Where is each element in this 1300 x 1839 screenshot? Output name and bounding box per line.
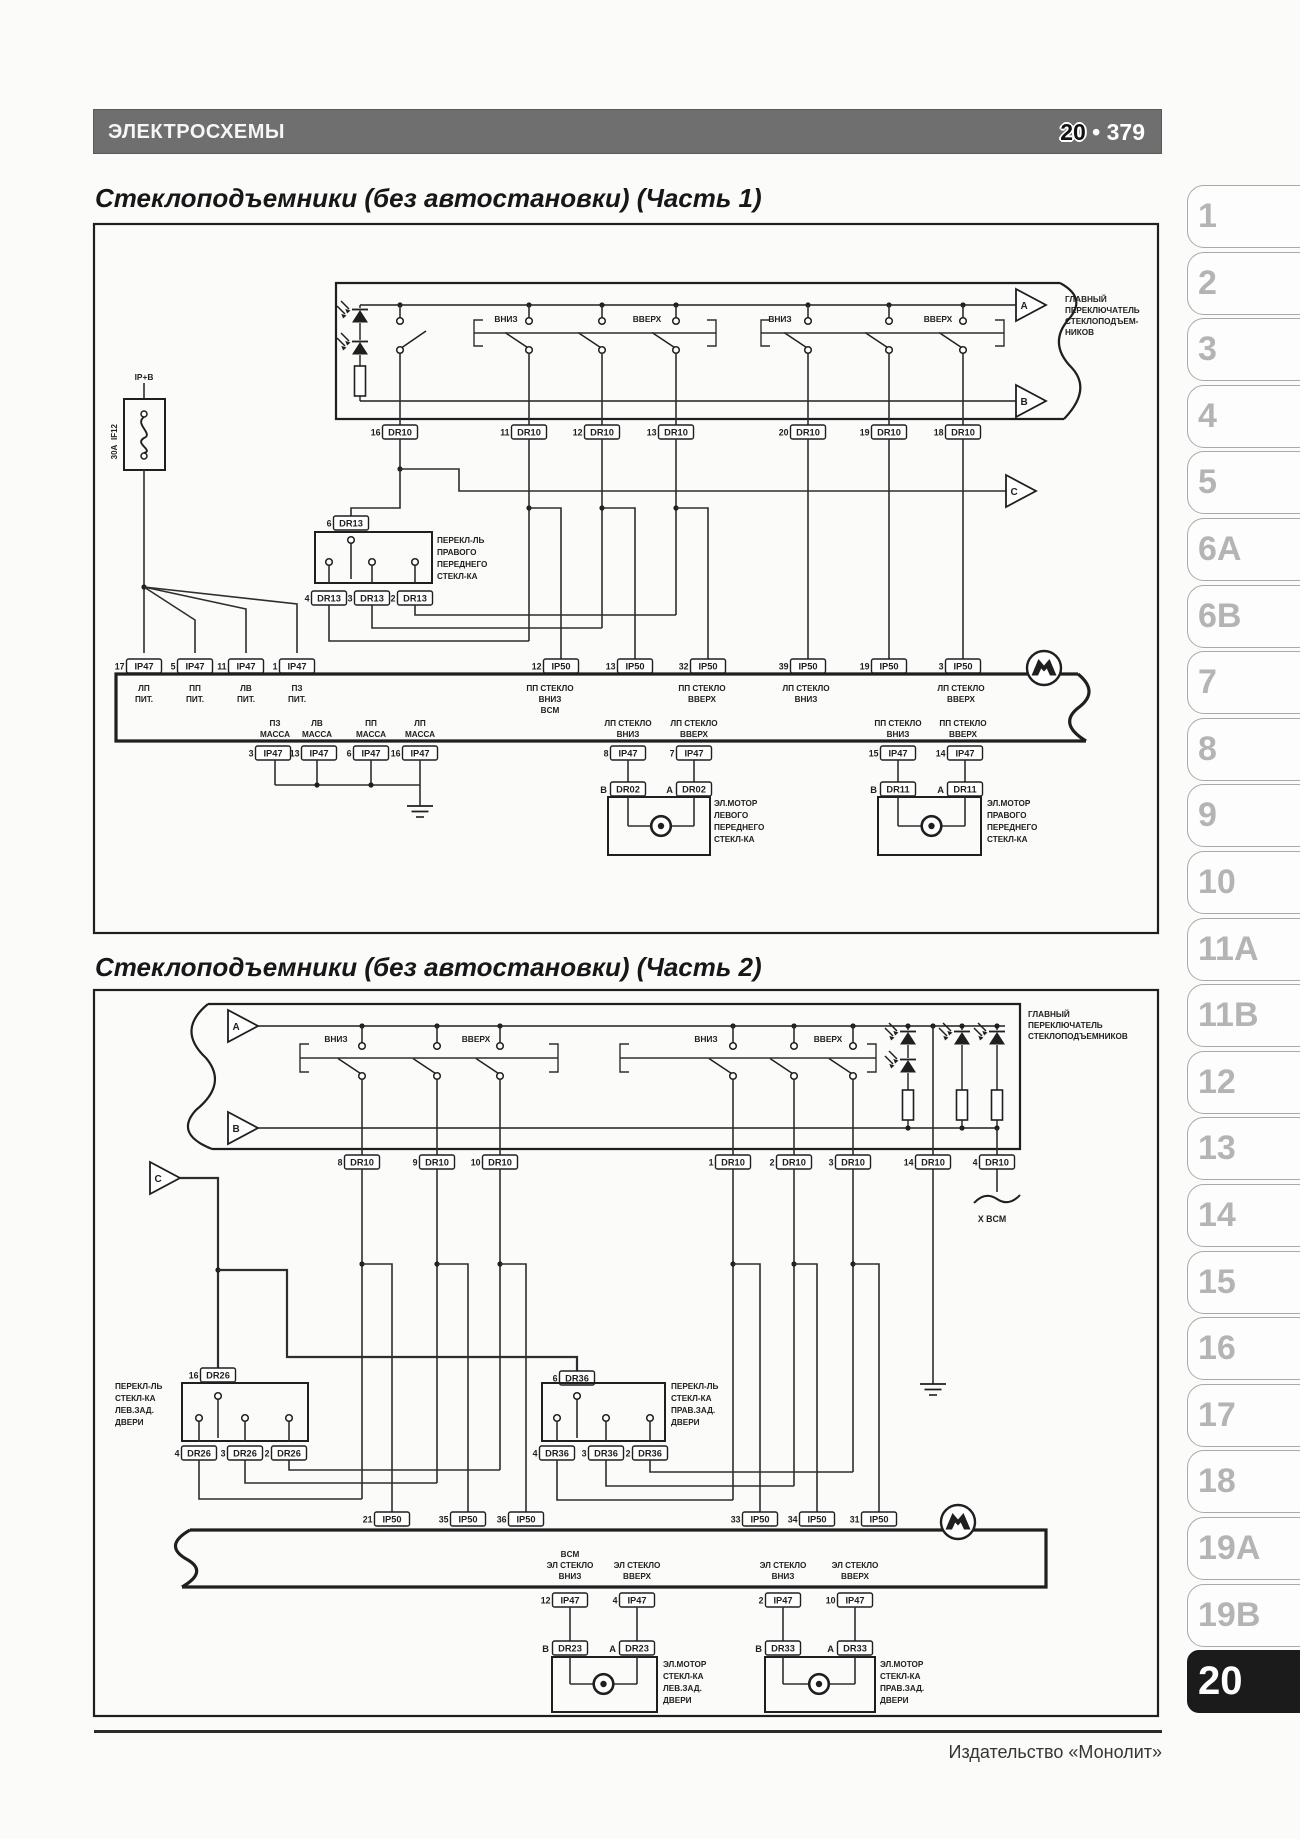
svg-text:DR10: DR10 [517,427,541,437]
svg-text:IP50: IP50 [516,1514,535,1524]
svg-text:ДВЕРИ: ДВЕРИ [663,1696,692,1705]
svg-text:B: B [755,1644,762,1654]
svg-text:DR13: DR13 [360,593,384,603]
svg-text:ВНИЗ: ВНИЗ [559,1572,582,1581]
svg-text:DR10: DR10 [796,427,820,437]
svg-text:1: 1 [709,1157,714,1167]
svg-text:ЭЛ СТЕКЛО: ЭЛ СТЕКЛО [832,1561,879,1570]
svg-text:2: 2 [626,1448,631,1458]
svg-text:DR10: DR10 [350,1157,374,1167]
svg-text:B: B [1021,397,1028,408]
svg-text:9: 9 [413,1157,418,1167]
svg-text:DR11: DR11 [886,784,909,794]
svg-text:C: C [155,1174,162,1185]
svg-text:ЭЛ СТЕКЛО: ЭЛ СТЕКЛО [547,1561,594,1570]
svg-text:IP50: IP50 [869,1514,888,1524]
svg-text:НИКОВ: НИКОВ [1065,328,1094,337]
svg-text:ПРАВ.ЗАД.: ПРАВ.ЗАД. [880,1684,924,1693]
svg-text:ПЕРЕДНЕГО: ПЕРЕДНЕГО [987,823,1038,832]
svg-text:СТЕКЛ-КА: СТЕКЛ-КА [880,1672,921,1681]
svg-text:ПП СТЕКЛО: ПП СТЕКЛО [678,684,726,693]
svg-text:ПЗ: ПЗ [291,684,302,693]
svg-text:ВВЕРХ: ВВЕРХ [462,1034,491,1044]
svg-text:ВНИЗ: ВНИЗ [694,1034,717,1044]
svg-text:DR26: DR26 [187,1448,211,1458]
svg-text:IP50: IP50 [551,661,570,671]
svg-text:2: 2 [759,1595,764,1605]
svg-text:DR11: DR11 [953,784,976,794]
svg-text:39: 39 [779,661,789,671]
svg-text:DR33: DR33 [843,1643,867,1653]
svg-text:IP47: IP47 [627,1595,646,1605]
svg-text:ГЛАВНЫЙ: ГЛАВНЫЙ [1028,1008,1070,1019]
svg-text:4: 4 [533,1448,538,1458]
svg-text:IP47: IP47 [845,1595,864,1605]
svg-text:DR10: DR10 [877,427,901,437]
svg-text:A: A [609,1644,616,1654]
svg-text:B: B [542,1644,549,1654]
svg-text:ПЕРЕДНЕГО: ПЕРЕДНЕГО [714,823,765,832]
svg-text:1: 1 [273,661,278,671]
svg-text:DR10: DR10 [921,1157,945,1167]
svg-text:34: 34 [788,1514,798,1524]
svg-text:СТЕКЛ-КА: СТЕКЛ-КА [714,835,755,844]
svg-text:19: 19 [860,661,870,671]
svg-text:13: 13 [290,748,300,758]
svg-text:ПЕРЕКЛ-ЛЬ: ПЕРЕКЛ-ЛЬ [437,536,484,545]
svg-text:DR10: DR10 [985,1157,1009,1167]
svg-text:ПЕРЕКЛЮЧАТЕЛЬ: ПЕРЕКЛЮЧАТЕЛЬ [1065,306,1140,315]
svg-text:ВВЕРХ: ВВЕРХ [623,1572,651,1581]
svg-text:IP47: IP47 [236,661,255,671]
svg-text:IP47: IP47 [309,748,328,758]
svg-text:3: 3 [249,748,254,758]
svg-text:33: 33 [731,1514,741,1524]
svg-text:МАССА: МАССА [302,730,332,739]
svg-text:IP50: IP50 [698,661,717,671]
svg-text:ПЕРЕДНЕГО: ПЕРЕДНЕГО [437,560,488,569]
svg-text:IP47: IP47 [560,1595,579,1605]
svg-text:ЛП: ЛП [138,684,150,693]
svg-text:ВВЕРХ: ВВЕРХ [680,730,708,739]
svg-text:X BCM: X BCM [978,1214,1006,1224]
svg-text:DR10: DR10 [664,427,688,437]
svg-text:ВНИЗ: ВНИЗ [494,314,517,324]
svg-text:СТЕКЛОПОДЪЕМ-: СТЕКЛОПОДЪЕМ- [1065,317,1139,326]
svg-text:IP50: IP50 [750,1514,769,1524]
svg-text:DR10: DR10 [951,427,975,437]
svg-text:DR13: DR13 [403,593,427,603]
svg-text:СТЕКЛ-КА: СТЕКЛ-КА [437,572,478,581]
svg-text:ЛВ: ЛВ [240,684,252,693]
svg-text:IP50: IP50 [798,661,817,671]
svg-text:ЛЕВ.ЗАД.: ЛЕВ.ЗАД. [115,1406,154,1415]
svg-text:ЛП СТЕКЛО: ЛП СТЕКЛО [782,684,830,693]
svg-text:IP47: IP47 [410,748,429,758]
svg-text:IP50: IP50 [953,661,972,671]
svg-text:16: 16 [189,1370,199,1380]
svg-text:ДВЕРИ: ДВЕРИ [671,1418,700,1427]
svg-text:IP47: IP47 [888,748,907,758]
svg-text:IP47: IP47 [955,748,974,758]
svg-text:ВНИЗ: ВНИЗ [324,1034,347,1044]
svg-text:ЛЕВОГО: ЛЕВОГО [714,811,749,820]
svg-text:ПП СТЕКЛО: ПП СТЕКЛО [874,719,922,728]
svg-text:ПЕРЕКЛ-ЛЬ: ПЕРЕКЛ-ЛЬ [671,1382,718,1391]
svg-text:DR13: DR13 [339,518,363,528]
svg-text:ВНИЗ: ВНИЗ [795,695,818,704]
svg-text:IP50: IP50 [625,661,644,671]
svg-text:IP+B: IP+B [135,372,154,382]
svg-text:8: 8 [338,1157,343,1167]
svg-text:МАССА: МАССА [356,730,386,739]
svg-text:3: 3 [829,1157,834,1167]
svg-text:IP47: IP47 [684,748,703,758]
svg-text:IP47: IP47 [618,748,637,758]
svg-text:IP47: IP47 [185,661,204,671]
svg-text:DR36: DR36 [565,1373,589,1383]
svg-text:IP50: IP50 [382,1514,401,1524]
svg-text:36: 36 [497,1514,507,1524]
svg-text:ПРАВОГО: ПРАВОГО [437,548,477,557]
svg-text:A: A [233,1022,240,1033]
svg-text:DR10: DR10 [721,1157,745,1167]
svg-text:3: 3 [939,661,944,671]
svg-text:ЛП: ЛП [414,719,426,728]
svg-text:DR23: DR23 [625,1643,649,1653]
svg-text:BCM: BCM [561,1550,580,1559]
svg-text:IP47: IP47 [773,1595,792,1605]
svg-text:DR10: DR10 [841,1157,865,1167]
svg-text:A: A [827,1644,834,1654]
svg-text:IP50: IP50 [879,661,898,671]
svg-text:DR26: DR26 [233,1448,257,1458]
svg-text:МАССА: МАССА [405,730,435,739]
svg-text:ВВЕРХ: ВВЕРХ [688,695,716,704]
svg-text:ВНИЗ: ВНИЗ [772,1572,795,1581]
svg-text:3: 3 [348,593,353,603]
svg-text:ЛП СТЕКЛО: ЛП СТЕКЛО [604,719,652,728]
svg-text:ДВЕРИ: ДВЕРИ [880,1696,909,1705]
svg-text:ВНИЗ: ВНИЗ [617,730,640,739]
svg-text:ВВЕРХ: ВВЕРХ [633,314,662,324]
svg-text:ЭЛ СТЕКЛО: ЭЛ СТЕКЛО [760,1561,807,1570]
svg-text:4: 4 [175,1448,180,1458]
svg-text:DR02: DR02 [616,784,640,794]
svg-text:11: 11 [500,427,509,437]
svg-text:10: 10 [826,1595,836,1605]
svg-text:14: 14 [904,1157,914,1167]
svg-text:DR36: DR36 [545,1448,569,1458]
svg-text:IP47: IP47 [361,748,380,758]
svg-text:4: 4 [973,1157,978,1167]
svg-text:ЭЛ.МОТОР: ЭЛ.МОТОР [714,799,758,808]
svg-text:СТЕКЛ-КА: СТЕКЛ-КА [671,1394,712,1403]
svg-text:ПЕРЕКЛЮЧАТЕЛЬ: ПЕРЕКЛЮЧАТЕЛЬ [1028,1021,1103,1030]
svg-text:СТЕКЛ-КА: СТЕКЛ-КА [115,1394,156,1403]
svg-text:DR26: DR26 [206,1370,230,1380]
svg-text:DR10: DR10 [388,427,412,437]
svg-text:DR26: DR26 [277,1448,301,1458]
svg-text:12: 12 [532,661,542,671]
svg-text:ВВЕРХ: ВВЕРХ [841,1572,869,1581]
svg-text:6: 6 [327,518,332,528]
svg-text:DR33: DR33 [771,1643,795,1653]
svg-text:A: A [666,785,673,795]
svg-text:IP47: IP47 [263,748,282,758]
svg-text:DR02: DR02 [682,784,706,794]
svg-text:B: B [870,785,877,795]
svg-text:ПП: ПП [365,719,377,728]
svg-text:СТЕКЛОПОДЪЕМНИКОВ: СТЕКЛОПОДЪЕМНИКОВ [1028,1032,1128,1041]
svg-text:12: 12 [541,1595,551,1605]
svg-text:ЛП СТЕКЛО: ЛП СТЕКЛО [670,719,718,728]
svg-text:IP47: IP47 [287,661,306,671]
svg-text:СТЕКЛ-КА: СТЕКЛ-КА [663,1672,704,1681]
svg-text:6: 6 [347,748,352,758]
svg-text:C: C [1011,487,1018,498]
svg-text:30А: 30А [110,444,119,459]
svg-text:ПП: ПП [189,684,201,693]
svg-text:ЭЛ.МОТОР: ЭЛ.МОТОР [987,799,1031,808]
svg-text:6: 6 [553,1373,558,1383]
svg-text:ПИТ.: ПИТ. [186,695,204,704]
svg-text:13: 13 [647,427,657,437]
svg-text:32: 32 [679,661,689,671]
svg-text:10: 10 [471,1157,481,1167]
svg-text:ЭЛ.МОТОР: ЭЛ.МОТОР [663,1660,707,1669]
svg-text:ЛЕВ.ЗАД.: ЛЕВ.ЗАД. [663,1684,702,1693]
svg-text:ПЗ: ПЗ [269,719,280,728]
svg-text:ВНИЗ: ВНИЗ [539,695,562,704]
svg-text:ВВЕРХ: ВВЕРХ [949,730,977,739]
svg-text:ЭЛ СТЕКЛО: ЭЛ СТЕКЛО [614,1561,661,1570]
svg-text:IP50: IP50 [458,1514,477,1524]
svg-text:ПРАВОГО: ПРАВОГО [987,811,1027,820]
svg-text:17: 17 [115,661,125,671]
svg-text:DR36: DR36 [638,1448,662,1458]
svg-text:2: 2 [770,1157,775,1167]
svg-text:8: 8 [604,748,609,758]
svg-text:ГЛАВНЫЙ: ГЛАВНЫЙ [1065,293,1107,304]
svg-text:DR10: DR10 [782,1157,806,1167]
svg-text:ПИТ.: ПИТ. [288,695,306,704]
svg-text:ЛВ: ЛВ [311,719,323,728]
svg-text:СТЕКЛ-КА: СТЕКЛ-КА [987,835,1028,844]
svg-text:DR36: DR36 [594,1448,618,1458]
svg-text:31: 31 [850,1514,860,1524]
svg-text:5: 5 [171,661,176,671]
svg-text:DR10: DR10 [590,427,614,437]
svg-text:DR23: DR23 [558,1643,582,1653]
svg-text:35: 35 [439,1514,449,1524]
svg-text:ПП СТЕКЛО: ПП СТЕКЛО [526,684,574,693]
svg-text:11: 11 [217,661,226,671]
svg-text:21: 21 [363,1514,373,1524]
svg-text:ЭЛ.МОТОР: ЭЛ.МОТОР [880,1660,924,1669]
svg-text:7: 7 [670,748,675,758]
svg-text:19: 19 [860,427,870,437]
svg-text:BCM: BCM [541,706,560,715]
svg-text:DR13: DR13 [317,593,341,603]
svg-text:ПРАВ.ЗАД.: ПРАВ.ЗАД. [671,1406,715,1415]
svg-text:IP50: IP50 [807,1514,826,1524]
svg-text:A: A [1021,301,1028,312]
svg-text:14: 14 [936,748,946,758]
svg-text:IP47: IP47 [134,661,153,671]
svg-text:ЛП СТЕКЛО: ЛП СТЕКЛО [937,684,985,693]
svg-text:2: 2 [265,1448,270,1458]
svg-text:3: 3 [221,1448,226,1458]
svg-text:ПЕРЕКЛ-ЛЬ: ПЕРЕКЛ-ЛЬ [115,1382,162,1391]
svg-text:13: 13 [606,661,616,671]
svg-text:ВВЕРХ: ВВЕРХ [924,314,953,324]
svg-text:DR10: DR10 [425,1157,449,1167]
svg-text:20: 20 [779,427,789,437]
svg-text:15: 15 [869,748,879,758]
svg-text:DR10: DR10 [488,1157,512,1167]
svg-text:3: 3 [582,1448,587,1458]
svg-text:2: 2 [391,593,396,603]
svg-text:ПИТ.: ПИТ. [237,695,255,704]
svg-text:ПИТ.: ПИТ. [135,695,153,704]
svg-text:ДВЕРИ: ДВЕРИ [115,1418,144,1427]
svg-text:ПП СТЕКЛО: ПП СТЕКЛО [939,719,987,728]
svg-text:18: 18 [934,427,944,437]
svg-text:ВНИЗ: ВНИЗ [768,314,791,324]
svg-text:A: A [937,785,944,795]
svg-text:ВВЕРХ: ВВЕРХ [814,1034,843,1044]
svg-text:4: 4 [305,593,310,603]
svg-text:16: 16 [371,427,381,437]
svg-text:4: 4 [613,1595,618,1605]
svg-text:B: B [233,1124,240,1135]
svg-text:IF12: IF12 [110,423,119,440]
svg-text:16: 16 [391,748,401,758]
svg-text:B: B [600,785,607,795]
svg-text:ВВЕРХ: ВВЕРХ [947,695,975,704]
svg-text:МАССА: МАССА [260,730,290,739]
svg-text:ВНИЗ: ВНИЗ [887,730,910,739]
svg-text:12: 12 [573,427,583,437]
